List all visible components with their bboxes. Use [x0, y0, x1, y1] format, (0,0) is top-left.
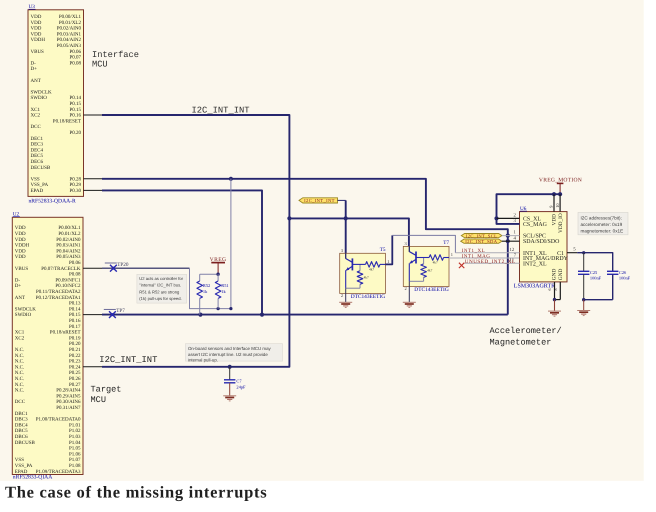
svg-text:R51: R51 — [221, 283, 228, 288]
svg-text:GND: GND — [552, 269, 558, 281]
svg-text:P0.02/AIN0: P0.02/AIN0 — [56, 237, 81, 243]
svg-text:VDD_IO: VDD_IO — [558, 213, 564, 233]
svg-text:24pF: 24pF — [236, 384, 246, 389]
svg-text:P0.17: P0.17 — [69, 324, 81, 330]
svg-text:C7: C7 — [236, 379, 242, 384]
svg-text:D-: D- — [15, 277, 21, 283]
svg-text:R51 & R52 are strong: R51 & R52 are strong — [139, 289, 180, 294]
svg-text:P1.01: P1.01 — [69, 422, 81, 428]
svg-text:P0.23: P0.23 — [69, 359, 81, 365]
svg-text:N.C.: N.C. — [15, 353, 24, 359]
svg-text:VDDH: VDDH — [15, 243, 30, 249]
svg-text:EPAD: EPAD — [15, 469, 28, 475]
svg-text:ANT: ANT — [15, 295, 25, 301]
svg-text:I2C addresses(7bit):: I2C addresses(7bit): — [581, 215, 622, 220]
svg-text:P0.19: P0.19 — [69, 335, 81, 341]
svg-text:P0.01/XL2: P0.01/XL2 — [58, 231, 81, 237]
svg-text:I2C_INT_INT: I2C_INT_INT — [304, 198, 335, 203]
svg-text:4k7: 4k7 — [364, 276, 369, 280]
svg-text:SWDCLK: SWDCLK — [31, 89, 53, 95]
svg-text:P1.03: P1.03 — [69, 434, 81, 440]
svg-text:SWDIO: SWDIO — [15, 312, 32, 318]
svg-text:N.C.: N.C. — [15, 359, 24, 365]
svg-text:P0.20: P0.20 — [69, 130, 81, 136]
svg-text:P0.07/TRACECLK: P0.07/TRACECLK — [41, 266, 81, 272]
svg-text:VDD: VDD — [31, 14, 42, 20]
svg-text:"internal" I2C_INT bus.: "internal" I2C_INT bus. — [139, 283, 181, 288]
svg-text:VDDH: VDDH — [31, 37, 46, 43]
svg-text:P0.24: P0.24 — [69, 364, 81, 370]
svg-text:P1.00/TRACEDATA0: P1.00/TRACEDATA0 — [36, 417, 81, 423]
svg-text:DBC3: DBC3 — [15, 417, 28, 423]
svg-text:P1.05: P1.05 — [69, 446, 81, 452]
svg-text:DCC: DCC — [15, 399, 26, 405]
svg-text:On-board sensors and Interface: On-board sensors and Interface MCU may — [188, 346, 272, 351]
svg-text:P0.18/RESET: P0.18/RESET — [53, 118, 81, 124]
svg-text:P0.30/AIN6: P0.30/AIN6 — [56, 399, 81, 405]
svg-text:1: 1 — [451, 252, 453, 257]
svg-text:100nF: 100nF — [619, 276, 631, 281]
svg-text:P0.28: P0.28 — [69, 176, 81, 182]
svg-text:R52: R52 — [203, 283, 210, 288]
svg-text:Magnetometer: Magnetometer — [490, 337, 552, 347]
svg-text:CS_MAG: CS_MAG — [523, 222, 548, 228]
svg-text:P0.15: P0.15 — [69, 312, 81, 318]
svg-text:VDD: VDD — [15, 254, 26, 260]
svg-text:P0.15: P0.15 — [69, 101, 81, 107]
svg-text:VREG_MOTION: VREG_MOTION — [539, 177, 582, 183]
svg-text:GND: GND — [558, 269, 564, 281]
svg-text:I2C_INT_SDA: I2C_INT_SDA — [465, 239, 498, 244]
svg-text:U2 acts as controller for: U2 acts as controller for — [139, 276, 183, 281]
svg-text:T7: T7 — [443, 240, 449, 246]
svg-text:VDD: VDD — [31, 31, 42, 37]
svg-text:I2C_INT_INT: I2C_INT_INT — [99, 355, 157, 365]
svg-text:P1.08: P1.08 — [69, 463, 81, 469]
svg-text:P0.16: P0.16 — [69, 318, 81, 324]
svg-text:XC1: XC1 — [15, 330, 25, 336]
svg-text:P0.28/AIN4: P0.28/AIN4 — [56, 388, 81, 394]
svg-text:4k7: 4k7 — [433, 261, 438, 265]
svg-text:VDD: VDD — [15, 237, 26, 243]
svg-text:VSS_PA: VSS_PA — [15, 463, 33, 469]
svg-text:P0.10/NFC2: P0.10/NFC2 — [55, 283, 81, 289]
svg-text:DECUSB: DECUSB — [31, 165, 51, 171]
svg-text:DBC6: DBC6 — [15, 434, 28, 440]
svg-text:P0.21: P0.21 — [69, 347, 81, 353]
svg-text:DEC4: DEC4 — [31, 147, 44, 153]
svg-text:P0.14: P0.14 — [69, 306, 81, 312]
svg-text:INT1_XL: INT1_XL — [462, 248, 486, 254]
svg-text:(1k) pull-ups for speed.: (1k) pull-ups for speed. — [139, 296, 181, 301]
svg-text:VDD: VDD — [15, 231, 26, 237]
svg-text:internal pull-up.: internal pull-up. — [188, 358, 218, 363]
svg-text:magnetometer: 0x1E: magnetometer: 0x1E — [581, 229, 624, 234]
svg-text:1: 1 — [387, 259, 389, 264]
svg-text:D-: D- — [31, 60, 37, 66]
svg-text:2: 2 — [405, 286, 407, 291]
svg-text:assert I2C interrupt line. U2: assert I2C interrupt line. U2 must provi… — [188, 352, 268, 357]
svg-text:P0.05/AIN3: P0.05/AIN3 — [57, 43, 82, 49]
svg-text:P0.06: P0.06 — [69, 49, 81, 55]
svg-text:4k7: 4k7 — [427, 269, 432, 273]
svg-text:P0.16: P0.16 — [69, 113, 81, 119]
svg-text:XC2: XC2 — [15, 335, 25, 341]
svg-text:P0.27: P0.27 — [69, 382, 81, 388]
svg-text:VSS: VSS — [31, 176, 40, 182]
svg-text:P0.12/TRACEDATA1: P0.12/TRACEDATA1 — [36, 295, 81, 301]
svg-text:N.C.: N.C. — [15, 376, 24, 382]
svg-text:P0.03/AIN1: P0.03/AIN1 — [57, 31, 82, 37]
svg-text:INT2_XL: INT2_XL — [523, 261, 547, 267]
svg-text:P0.20: P0.20 — [69, 341, 81, 347]
svg-text:D+: D+ — [31, 66, 38, 72]
svg-text:Accelerometer/: Accelerometer/ — [490, 326, 562, 336]
svg-text:P0.26: P0.26 — [69, 376, 81, 382]
svg-text:ANT: ANT — [31, 78, 41, 84]
svg-text:P1.07: P1.07 — [69, 457, 81, 463]
svg-text:C25: C25 — [590, 270, 598, 275]
svg-text:P1.06: P1.06 — [69, 451, 81, 457]
svg-text:EPAD: EPAD — [31, 188, 44, 194]
svg-text:P0.06: P0.06 — [69, 260, 81, 266]
svg-text:P0.08: P0.08 — [69, 60, 81, 66]
svg-text:2: 2 — [341, 293, 343, 298]
svg-text:P0.07: P0.07 — [69, 55, 81, 61]
svg-text:N.C.: N.C. — [15, 370, 24, 376]
svg-text:VDD: VDD — [31, 26, 42, 32]
svg-text:N.C.: N.C. — [15, 388, 24, 394]
svg-text:VDD: VDD — [31, 20, 42, 26]
svg-text:C1: C1 — [557, 251, 564, 257]
svg-text:P0.29/AIN5: P0.29/AIN5 — [56, 393, 81, 399]
svg-text:C26: C26 — [619, 270, 627, 275]
svg-text:P0.25: P0.25 — [69, 370, 81, 376]
svg-text:DCC: DCC — [31, 124, 42, 130]
svg-text:P1.04: P1.04 — [69, 440, 81, 446]
svg-text:P0.04/AIN2: P0.04/AIN2 — [56, 248, 81, 254]
svg-text:N.C.: N.C. — [15, 382, 24, 388]
svg-text:VBUS: VBUS — [31, 49, 45, 55]
svg-text:SWDCLK: SWDCLK — [15, 306, 37, 312]
svg-text:VDD: VDD — [15, 248, 26, 254]
svg-text:12: 12 — [510, 247, 515, 253]
svg-text:P0.00/XL1: P0.00/XL1 — [59, 14, 82, 20]
svg-text:T5: T5 — [380, 247, 386, 253]
svg-text:P0.18/nRESET: P0.18/nRESET — [50, 330, 81, 336]
svg-text:DEC1: DEC1 — [31, 136, 44, 142]
svg-text:100nF: 100nF — [590, 276, 602, 281]
svg-text:P0.22: P0.22 — [69, 353, 81, 359]
svg-text:VBUS: VBUS — [15, 266, 29, 272]
svg-text:N.C.: N.C. — [15, 364, 24, 370]
svg-text:P0.31/AIN7: P0.31/AIN7 — [56, 405, 81, 411]
svg-text:XC2: XC2 — [31, 113, 41, 119]
svg-text:nRF52833-QIAA: nRF52833-QIAA — [13, 475, 52, 481]
svg-text:SDA/SDI/SDO: SDA/SDI/SDO — [523, 239, 560, 245]
svg-text:P0.09/NFC1: P0.09/NFC1 — [55, 277, 81, 283]
svg-text:P0.03/AIN1: P0.03/AIN1 — [56, 243, 81, 249]
svg-text:4k7: 4k7 — [369, 267, 374, 271]
svg-text:D+: D+ — [15, 283, 22, 289]
svg-text:P0.04/AIN2: P0.04/AIN2 — [57, 37, 82, 43]
svg-text:Target: Target — [91, 385, 122, 395]
svg-text:P1.02: P1.02 — [69, 428, 81, 434]
svg-text:VSS: VSS — [15, 457, 24, 463]
svg-text:DTC143EETIG: DTC143EETIG — [414, 287, 449, 293]
svg-text:P0.29: P0.29 — [69, 182, 81, 188]
svg-text:6: 6 — [547, 289, 552, 291]
svg-text:UNUSED_INT2_XL: UNUSED_INT2_XL — [465, 259, 516, 265]
svg-text:P1.09/TRACEDATA3: P1.09/TRACEDATA3 — [36, 469, 81, 475]
svg-text:accelerometer: 0x19: accelerometer: 0x19 — [581, 222, 623, 227]
svg-text:The case of the missing interr: The case of the missing interrupts — [5, 483, 267, 502]
svg-text:P0.13: P0.13 — [69, 301, 81, 307]
svg-text:P0.15: P0.15 — [69, 107, 81, 113]
svg-text:P0.01/XL2: P0.01/XL2 — [59, 20, 82, 26]
svg-text:VDD: VDD — [552, 214, 558, 226]
svg-text:P0.00/XL1: P0.00/XL1 — [58, 225, 81, 231]
svg-text:TP20: TP20 — [117, 262, 129, 268]
svg-text:DBC1: DBC1 — [15, 411, 28, 417]
svg-text:I2C_INT_SCL: I2C_INT_SCL — [466, 233, 497, 238]
svg-text:N.C.: N.C. — [15, 347, 24, 353]
svg-text:DBC5: DBC5 — [15, 428, 28, 434]
svg-text:P0.05/AIN3: P0.05/AIN3 — [56, 254, 81, 260]
svg-text:DBCUSB: DBCUSB — [15, 440, 36, 446]
svg-text:P0.11/TRACEDATA2: P0.11/TRACEDATA2 — [36, 289, 81, 295]
svg-text:DEC5: DEC5 — [31, 153, 44, 159]
svg-text:MCU: MCU — [91, 395, 106, 405]
svg-text:P0.30: P0.30 — [69, 188, 81, 194]
svg-text:DBC4: DBC4 — [15, 422, 28, 428]
svg-text:SWDIO: SWDIO — [31, 95, 48, 101]
svg-text:P0.08: P0.08 — [69, 272, 81, 278]
svg-text:XC1: XC1 — [31, 107, 41, 113]
svg-text:P0.14: P0.14 — [69, 95, 81, 101]
svg-text:P0.02/AIN0: P0.02/AIN0 — [57, 26, 82, 32]
svg-text:nRF52833-QDAA-R: nRF52833-QDAA-R — [29, 199, 77, 205]
svg-text:VSS_PA: VSS_PA — [31, 182, 49, 188]
svg-text:DEC3: DEC3 — [31, 142, 44, 148]
svg-text:DTC143EETIG: DTC143EETIG — [351, 294, 386, 300]
svg-text:TP7: TP7 — [116, 308, 125, 314]
svg-text:DEC6: DEC6 — [31, 159, 44, 165]
svg-text:VDD: VDD — [15, 225, 26, 231]
svg-text:MCU: MCU — [92, 60, 108, 70]
